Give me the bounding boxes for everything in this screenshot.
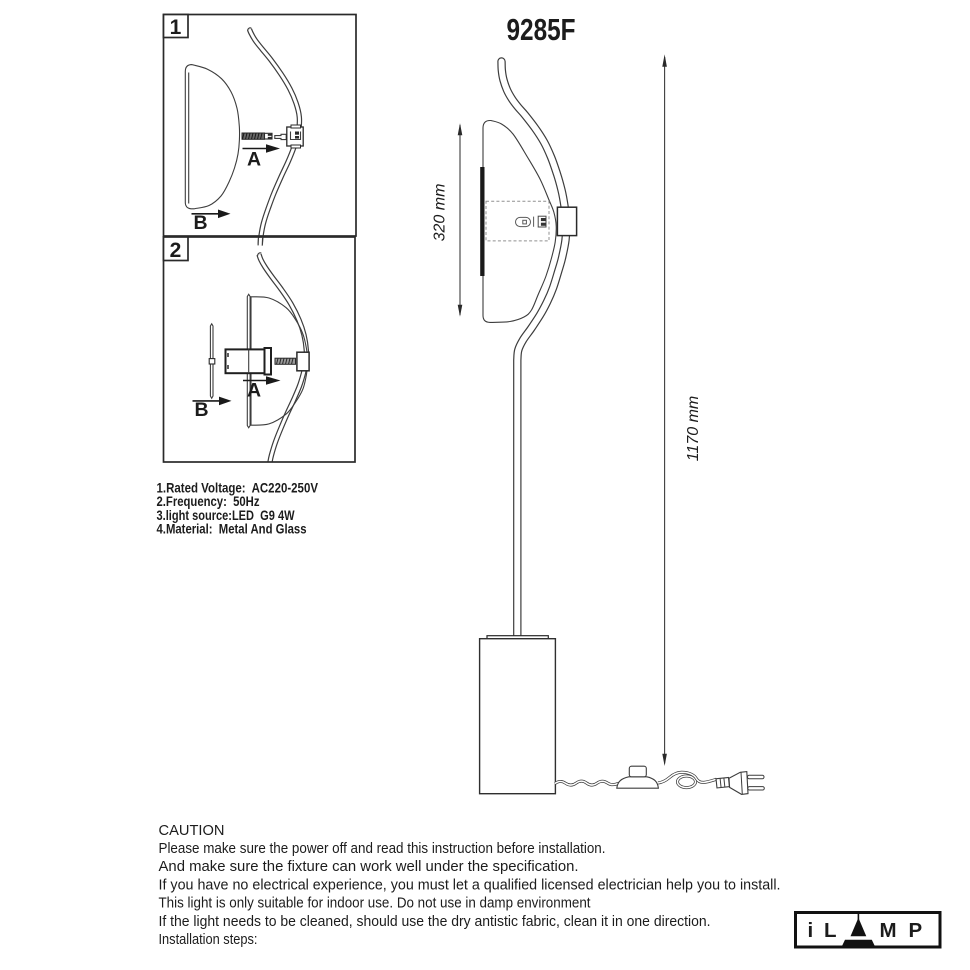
svg-text:If the light needs to be clean: If the light needs to be cleaned, should… bbox=[159, 913, 711, 930]
svg-text:320 mm: 320 mm bbox=[432, 184, 449, 242]
svg-text:CAUTION: CAUTION bbox=[159, 822, 225, 839]
svg-text:L: L bbox=[824, 919, 837, 942]
svg-text:1: 1 bbox=[170, 16, 182, 39]
svg-text:This light is only suitable fo: This light is only suitable for indoor u… bbox=[159, 895, 592, 912]
svg-text:P: P bbox=[909, 919, 923, 942]
svg-text:Please make sure the power off: Please make sure the power off and read … bbox=[159, 840, 606, 857]
svg-text:i: i bbox=[808, 919, 814, 942]
svg-text:And make sure the fixture can: And make sure the fixture can work well … bbox=[159, 858, 579, 875]
svg-text:B: B bbox=[195, 399, 209, 421]
svg-text:A: A bbox=[247, 380, 261, 402]
svg-text:1170 mm: 1170 mm bbox=[685, 396, 702, 462]
svg-text:A: A bbox=[247, 149, 261, 171]
svg-text:9285F: 9285F bbox=[507, 12, 576, 47]
svg-text:M: M bbox=[880, 919, 897, 942]
svg-text:B: B bbox=[194, 212, 208, 234]
svg-text:4.Material: Metal And Glass: 4.Material: Metal And Glass bbox=[157, 520, 307, 536]
svg-text:2: 2 bbox=[170, 239, 182, 262]
svg-text:If you have no electrical expe: If you have no electrical experience, yo… bbox=[159, 876, 781, 893]
svg-text:Installation steps:: Installation steps: bbox=[159, 931, 258, 948]
